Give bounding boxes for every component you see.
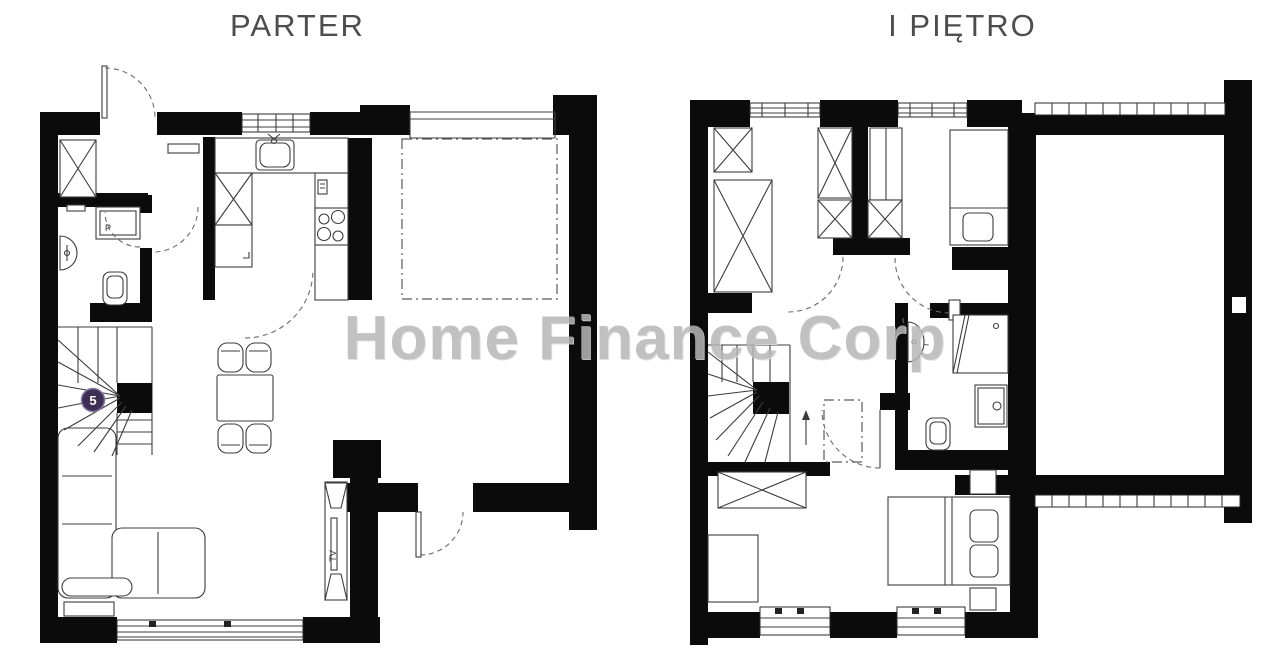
parter-tv-unit: TV (325, 482, 347, 600)
pillow (970, 545, 998, 577)
parter-bathroom: P (60, 205, 140, 305)
floorplan-page: PARTER I PIĘTRO (0, 0, 1280, 671)
pillow (970, 510, 998, 542)
tv-label: TV (328, 550, 338, 562)
parter-stairs-badge: 5 (82, 389, 105, 412)
bath-sink (60, 236, 77, 270)
stairs-direction-arrow (802, 410, 810, 420)
badge-number: 5 (89, 393, 96, 408)
parter-kitchen-window (242, 114, 310, 132)
nightstand (970, 470, 996, 494)
parter-living-window (117, 620, 303, 640)
garage-dashed-zone (402, 139, 557, 299)
chair (246, 424, 271, 453)
stair-core (117, 383, 152, 413)
parter-kitchen (215, 134, 348, 338)
parter-hall-wardrobe (60, 140, 199, 197)
stairwell-void (824, 400, 862, 462)
chair (218, 424, 243, 453)
floorplan-drawing: P (0, 0, 1280, 671)
desk (708, 535, 758, 602)
shower-tray (96, 207, 140, 239)
shower (953, 315, 1008, 373)
parter-front-door (102, 66, 155, 118)
pietro-bathroom (908, 315, 1008, 450)
nightstand (970, 588, 996, 610)
parter-dining-set (217, 343, 273, 453)
parter-garage-door (410, 112, 555, 138)
chair (218, 343, 243, 372)
floorplan-parter: P (40, 66, 597, 643)
pietro-railing-bottom (1035, 495, 1240, 507)
floorplan-pietro (690, 80, 1252, 645)
pietro-stairs (708, 345, 862, 462)
pietro-bedroom2-furniture (868, 128, 1008, 245)
pietro-bedroom1-furniture (714, 128, 852, 292)
parter-sofa (58, 428, 205, 616)
single-bed (950, 130, 1008, 245)
chair (246, 343, 271, 372)
washing-machine (975, 385, 1007, 427)
pietro-railing-top (1035, 103, 1225, 115)
parter-hall-door-arc (153, 207, 198, 252)
dining-table (217, 375, 273, 421)
shower-label: P (105, 223, 111, 233)
